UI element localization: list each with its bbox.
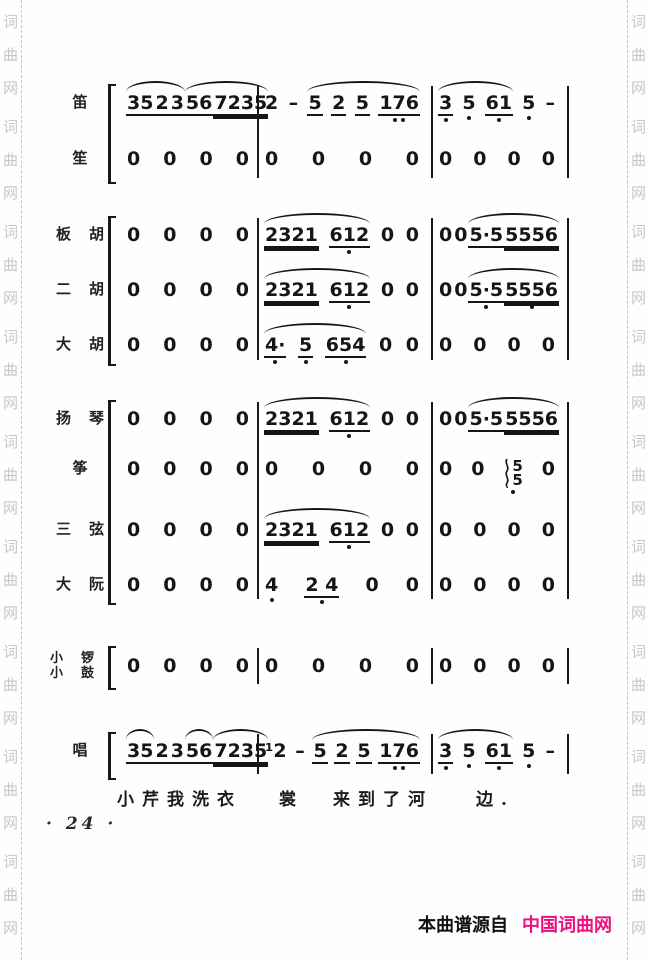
note: 5 bbox=[298, 334, 313, 358]
note: 5·5 bbox=[468, 224, 504, 248]
note: 0 bbox=[541, 334, 556, 356]
octave-dot bbox=[467, 764, 471, 768]
note: 2 bbox=[154, 740, 169, 764]
note: 612 bbox=[329, 519, 371, 543]
note: 0 bbox=[438, 148, 453, 170]
measure: ¹2–525176 bbox=[262, 740, 426, 766]
note: 35 bbox=[126, 740, 154, 764]
note: 2321 bbox=[264, 408, 319, 432]
note: 0 bbox=[126, 148, 141, 170]
note: 2321 bbox=[264, 519, 319, 543]
note: 0 bbox=[507, 655, 522, 677]
page-number: · 24 · bbox=[46, 814, 117, 834]
note: 0 bbox=[541, 519, 556, 541]
footer-site-name: 中国词曲网 bbox=[522, 915, 612, 936]
barline bbox=[431, 218, 433, 360]
lyric-segment: 来到了河 bbox=[333, 785, 433, 810]
note: 0 bbox=[199, 224, 214, 246]
watermark-text-right: 词曲网 bbox=[630, 426, 647, 525]
octave-dot bbox=[344, 360, 348, 364]
measure: 005·55556 bbox=[436, 279, 562, 305]
watermark-text-right: 词曲网 bbox=[630, 741, 647, 840]
instrument-label: 扬琴 bbox=[56, 408, 104, 428]
note: 0 bbox=[405, 334, 420, 356]
measure: 35615– bbox=[436, 740, 562, 766]
instrument-label: 三弦 bbox=[56, 519, 104, 539]
group-bracket bbox=[108, 732, 116, 780]
note: 7235 bbox=[213, 740, 268, 764]
note: 5 bbox=[461, 740, 476, 762]
instrument-label-line: 小锣 bbox=[50, 651, 94, 666]
watermark-text-left: 词曲网 bbox=[2, 426, 19, 525]
slur-arc bbox=[468, 397, 559, 408]
watermark-text-right: 词曲网 bbox=[630, 531, 647, 630]
note: 61 bbox=[485, 92, 513, 116]
instrument-label: 筝 bbox=[56, 458, 104, 478]
note: – bbox=[294, 740, 306, 762]
note: 0 bbox=[541, 458, 556, 480]
note: 0 bbox=[541, 655, 556, 677]
note: 0 bbox=[405, 279, 420, 301]
note: 0 bbox=[126, 655, 141, 677]
note: – bbox=[288, 92, 300, 114]
note: 0 bbox=[380, 408, 395, 430]
measure: 0000 bbox=[436, 519, 562, 545]
measure: 0000 bbox=[124, 224, 256, 250]
slur-arc bbox=[185, 81, 268, 92]
note: 0 bbox=[162, 279, 177, 301]
instrument-label: 二胡 bbox=[56, 279, 104, 299]
note: 0 bbox=[235, 574, 250, 596]
note: 0 bbox=[199, 408, 214, 430]
note: 35 bbox=[126, 92, 154, 116]
octave-dot bbox=[393, 766, 397, 770]
note: 0 bbox=[507, 574, 522, 596]
barline bbox=[431, 648, 433, 684]
measure: 005·55556 bbox=[436, 224, 562, 250]
note: 0 bbox=[507, 148, 522, 170]
note: 3 bbox=[438, 92, 453, 116]
note: 2 bbox=[334, 740, 349, 764]
barline bbox=[257, 648, 259, 684]
note: 0 bbox=[470, 458, 485, 480]
note: 612 bbox=[329, 224, 371, 248]
note: 612 bbox=[329, 279, 371, 303]
end-barline bbox=[567, 648, 569, 684]
measure: 00550 bbox=[436, 458, 562, 484]
note: 4 bbox=[264, 574, 279, 596]
note: 5·5 bbox=[468, 408, 504, 432]
barline bbox=[431, 734, 433, 774]
slur-arc bbox=[307, 81, 420, 92]
note: 56 bbox=[185, 92, 213, 116]
note: 0 bbox=[541, 148, 556, 170]
end-barline bbox=[567, 218, 569, 360]
note: 0 bbox=[380, 279, 395, 301]
note: 0 bbox=[405, 574, 420, 596]
note: 5556 bbox=[504, 408, 559, 432]
measure: 3523567235 bbox=[124, 92, 256, 118]
watermark-text-left: 词曲网 bbox=[2, 111, 19, 210]
watermark-text-left: 词曲网 bbox=[2, 6, 19, 105]
watermark-dashed-line-dash-left bbox=[21, 0, 22, 960]
slur-arc bbox=[264, 213, 370, 224]
note: 0 bbox=[264, 655, 279, 677]
octave-dot bbox=[484, 305, 488, 309]
note: 0 bbox=[235, 408, 250, 430]
note: 2 bbox=[264, 92, 279, 114]
note: 2 bbox=[154, 92, 169, 116]
instrument-label: 笛 bbox=[56, 92, 104, 112]
note: 0 bbox=[235, 334, 250, 356]
lyric-segment: 小芹我洗衣 bbox=[117, 785, 242, 810]
note: 0 bbox=[453, 408, 468, 430]
note: 0 bbox=[438, 408, 453, 430]
slur-arc bbox=[264, 508, 370, 519]
measure: 232161200 bbox=[262, 279, 426, 305]
measure: 0000 bbox=[124, 408, 256, 434]
note: 0 bbox=[541, 574, 556, 596]
watermark-text-right: 词曲网 bbox=[630, 216, 647, 315]
note: 3 bbox=[170, 740, 185, 764]
slur-arc bbox=[264, 268, 370, 279]
note: 0 bbox=[311, 458, 326, 480]
slur-arc bbox=[213, 729, 268, 740]
note: 3 bbox=[438, 740, 453, 764]
note: 0 bbox=[126, 574, 141, 596]
note: 0 bbox=[162, 655, 177, 677]
note: 0 bbox=[235, 148, 250, 170]
note: 0 bbox=[199, 148, 214, 170]
note: 0 bbox=[453, 279, 468, 301]
octave-dot bbox=[304, 360, 308, 364]
note: ¹2 bbox=[264, 740, 288, 762]
measure: 2–525176 bbox=[262, 92, 426, 118]
note: 176 bbox=[378, 92, 420, 116]
end-barline bbox=[567, 86, 569, 178]
note: 0 bbox=[126, 408, 141, 430]
note: 0 bbox=[438, 655, 453, 677]
octave-dot bbox=[347, 545, 351, 549]
note: 7235 bbox=[213, 92, 268, 116]
note: 654 bbox=[325, 334, 367, 358]
octave-dot bbox=[347, 305, 351, 309]
group-bracket bbox=[108, 646, 116, 690]
instrument-label: 大阮 bbox=[56, 574, 104, 594]
octave-dot bbox=[347, 250, 351, 254]
note: 0 bbox=[405, 224, 420, 246]
note: 0 bbox=[358, 148, 373, 170]
group-bracket bbox=[108, 400, 116, 605]
octave-dot bbox=[527, 764, 531, 768]
note: 0 bbox=[364, 574, 379, 596]
note: 0 bbox=[405, 519, 420, 541]
instrument-label: 大胡 bbox=[56, 334, 104, 354]
note: 5 bbox=[307, 92, 322, 116]
octave-dot bbox=[444, 118, 448, 122]
octave-dot bbox=[497, 118, 501, 122]
measure: 35615– bbox=[436, 92, 562, 118]
watermark-text-left: 词曲网 bbox=[2, 636, 19, 735]
note: 3 bbox=[170, 92, 185, 116]
note: 0 bbox=[507, 334, 522, 356]
measure: 3523567235 bbox=[124, 740, 256, 766]
slur-arc bbox=[438, 729, 513, 740]
watermark-text-right: 词曲网 bbox=[630, 111, 647, 210]
measure: 42 400 bbox=[262, 574, 426, 600]
octave-dot bbox=[467, 116, 471, 120]
note: 0 bbox=[199, 519, 214, 541]
note: 0 bbox=[126, 519, 141, 541]
octave-dot bbox=[401, 118, 405, 122]
note: 2 4 bbox=[304, 574, 339, 598]
watermark-dashed-line-dash-right bbox=[627, 0, 628, 960]
measure: 0000 bbox=[124, 519, 256, 545]
watermark-text-right: 词曲网 bbox=[630, 321, 647, 420]
slur-arc bbox=[468, 213, 559, 224]
group-bracket bbox=[108, 216, 116, 366]
note: 0 bbox=[162, 574, 177, 596]
note: 5 bbox=[521, 740, 536, 762]
note: 0 bbox=[199, 279, 214, 301]
note: 0 bbox=[126, 334, 141, 356]
note: 0 bbox=[264, 458, 279, 480]
measure: 232161200 bbox=[262, 224, 426, 250]
note: 0 bbox=[311, 655, 326, 677]
note: 0 bbox=[507, 519, 522, 541]
note: 0 bbox=[378, 334, 393, 356]
note: 0 bbox=[438, 224, 453, 246]
note: 0 bbox=[472, 574, 487, 596]
octave-dot bbox=[270, 598, 274, 602]
octave-dot bbox=[527, 116, 531, 120]
octave-dot bbox=[401, 766, 405, 770]
note: 0 bbox=[162, 148, 177, 170]
watermark-text-right: 词曲网 bbox=[630, 636, 647, 735]
note: 5 bbox=[521, 92, 536, 114]
measure: 0000 bbox=[124, 148, 256, 174]
sheet-music-page: · 24 · 本曲谱源自中国词曲网 词曲网词曲网词曲网词曲网词曲网词曲网词曲网词… bbox=[0, 0, 650, 960]
note: 5556 bbox=[504, 279, 559, 303]
note: 0 bbox=[311, 148, 326, 170]
note: 0 bbox=[199, 458, 214, 480]
note: 0 bbox=[358, 458, 373, 480]
note: 5 bbox=[355, 92, 370, 116]
octave-dot bbox=[320, 600, 324, 604]
note: – bbox=[544, 740, 556, 762]
note: 5·5 bbox=[468, 279, 504, 303]
note: 0 bbox=[380, 224, 395, 246]
note: 5 bbox=[312, 740, 327, 764]
watermark-text-left: 词曲网 bbox=[2, 846, 19, 945]
measure: 232161200 bbox=[262, 519, 426, 545]
note: 0 bbox=[472, 334, 487, 356]
instrument-label: 唱 bbox=[56, 740, 104, 760]
note: 56 bbox=[185, 740, 213, 764]
footer-source-prefix: 本曲谱源自 bbox=[418, 915, 508, 936]
watermark-text-right: 词曲网 bbox=[630, 6, 647, 105]
slur-arc bbox=[126, 729, 154, 740]
note: 0 bbox=[162, 408, 177, 430]
note: 0 bbox=[264, 148, 279, 170]
note: 2 bbox=[331, 92, 346, 116]
measure: 005·55556 bbox=[436, 408, 562, 434]
measure: 0000 bbox=[124, 279, 256, 305]
note: 2321 bbox=[264, 224, 319, 248]
slur-arc bbox=[312, 729, 419, 740]
measure: 232161200 bbox=[262, 408, 426, 434]
note: 0 bbox=[199, 574, 214, 596]
note: 4· bbox=[264, 334, 286, 358]
barline bbox=[431, 86, 433, 178]
chord-tone: 5 bbox=[512, 473, 522, 487]
instrument-label: 小锣小鼓 bbox=[50, 651, 94, 681]
measure: 0000 bbox=[124, 458, 256, 484]
octave-dot bbox=[530, 305, 534, 309]
chord-note: 55 bbox=[502, 458, 523, 488]
octave-dot bbox=[511, 490, 515, 494]
lyric-segment: 裳 bbox=[279, 785, 304, 810]
note: 0 bbox=[235, 224, 250, 246]
note: 0 bbox=[472, 519, 487, 541]
measure: 0000 bbox=[124, 334, 256, 360]
measure: 0000 bbox=[124, 574, 256, 600]
watermark-text-left: 词曲网 bbox=[2, 741, 19, 840]
barline bbox=[257, 218, 259, 360]
group-bracket bbox=[108, 84, 116, 184]
note: 0 bbox=[438, 574, 453, 596]
note: 0 bbox=[235, 279, 250, 301]
note: 0 bbox=[405, 148, 420, 170]
slur-arc bbox=[126, 81, 185, 92]
note: 0 bbox=[405, 408, 420, 430]
note: 0 bbox=[162, 458, 177, 480]
octave-dot bbox=[347, 434, 351, 438]
footer-source-note: 本曲谱源自中国词曲网 bbox=[418, 911, 612, 937]
note: 61 bbox=[485, 740, 513, 764]
arpeggio-squiggle-icon bbox=[503, 458, 510, 488]
slur-arc bbox=[438, 81, 513, 92]
note: 0 bbox=[438, 279, 453, 301]
note: 0 bbox=[358, 655, 373, 677]
note: 0 bbox=[472, 655, 487, 677]
note: – bbox=[544, 92, 556, 114]
barline bbox=[431, 402, 433, 599]
note: 0 bbox=[126, 279, 141, 301]
note: 0 bbox=[405, 655, 420, 677]
note: 0 bbox=[438, 458, 453, 480]
measure: 0000 bbox=[436, 148, 562, 174]
measure: 0000 bbox=[262, 655, 426, 681]
note: 0 bbox=[235, 655, 250, 677]
watermark-text-left: 词曲网 bbox=[2, 321, 19, 420]
note: 0 bbox=[235, 519, 250, 541]
instrument-label: 板胡 bbox=[56, 224, 104, 244]
note: 0 bbox=[380, 519, 395, 541]
watermark-text-right: 词曲网 bbox=[630, 846, 647, 945]
octave-dot bbox=[393, 118, 397, 122]
measure: 4·565400 bbox=[262, 334, 426, 360]
note: 0 bbox=[162, 519, 177, 541]
note: 0 bbox=[162, 224, 177, 246]
measure: 0000 bbox=[436, 574, 562, 600]
note: 0 bbox=[235, 458, 250, 480]
slur-arc bbox=[264, 397, 370, 408]
note: 176 bbox=[378, 740, 420, 764]
note: 5 bbox=[356, 740, 371, 764]
end-barline bbox=[567, 734, 569, 774]
note: 0 bbox=[438, 519, 453, 541]
note: 0 bbox=[199, 655, 214, 677]
note: 5 bbox=[461, 92, 476, 114]
instrument-label-line: 小鼓 bbox=[50, 666, 94, 681]
slur-arc bbox=[468, 268, 559, 279]
lyric-segment: 边. bbox=[476, 785, 515, 810]
note: 612 bbox=[329, 408, 371, 432]
octave-dot bbox=[497, 766, 501, 770]
measure: 0000 bbox=[124, 655, 256, 681]
measure: 0000 bbox=[436, 334, 562, 360]
octave-dot bbox=[444, 766, 448, 770]
note: 0 bbox=[199, 334, 214, 356]
note: 5556 bbox=[504, 224, 559, 248]
note: 0 bbox=[126, 458, 141, 480]
barline bbox=[257, 402, 259, 599]
end-barline bbox=[567, 402, 569, 599]
slur-arc bbox=[264, 323, 366, 334]
note: 0 bbox=[162, 334, 177, 356]
watermark-text-left: 词曲网 bbox=[2, 216, 19, 315]
note: 0 bbox=[405, 458, 420, 480]
slur-arc bbox=[185, 729, 213, 740]
watermark-text-left: 词曲网 bbox=[2, 531, 19, 630]
note: 0 bbox=[453, 224, 468, 246]
instrument-label: 笙 bbox=[56, 148, 104, 168]
note: 2321 bbox=[264, 279, 319, 303]
note: 0 bbox=[126, 224, 141, 246]
measure: 0000 bbox=[262, 458, 426, 484]
measure: 0000 bbox=[436, 655, 562, 681]
note: 0 bbox=[472, 148, 487, 170]
note: 0 bbox=[438, 334, 453, 356]
octave-dot bbox=[273, 360, 277, 364]
measure: 0000 bbox=[262, 148, 426, 174]
